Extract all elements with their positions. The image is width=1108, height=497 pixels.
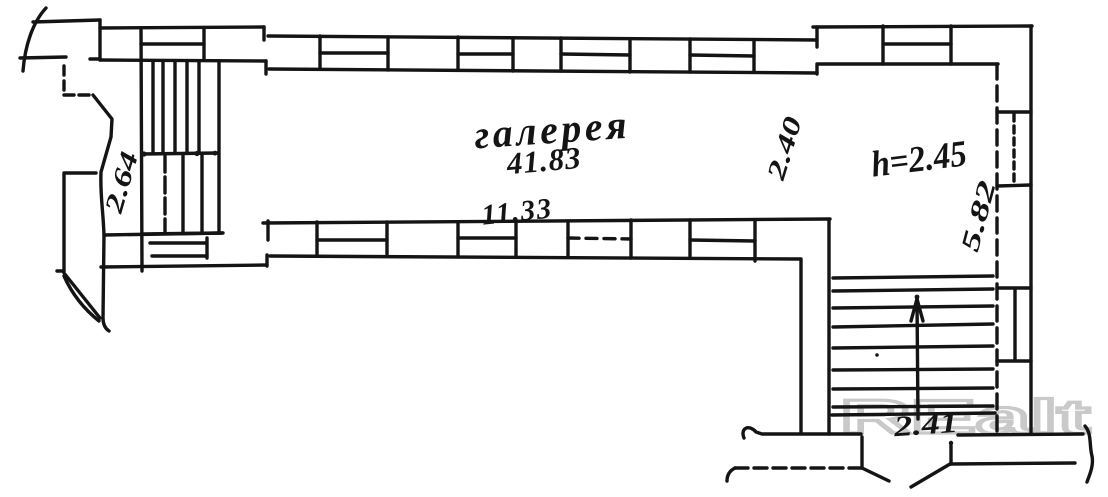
svg-text:2.41: 2.41 xyxy=(892,407,959,443)
svg-text:41.83: 41.83 xyxy=(504,140,583,181)
